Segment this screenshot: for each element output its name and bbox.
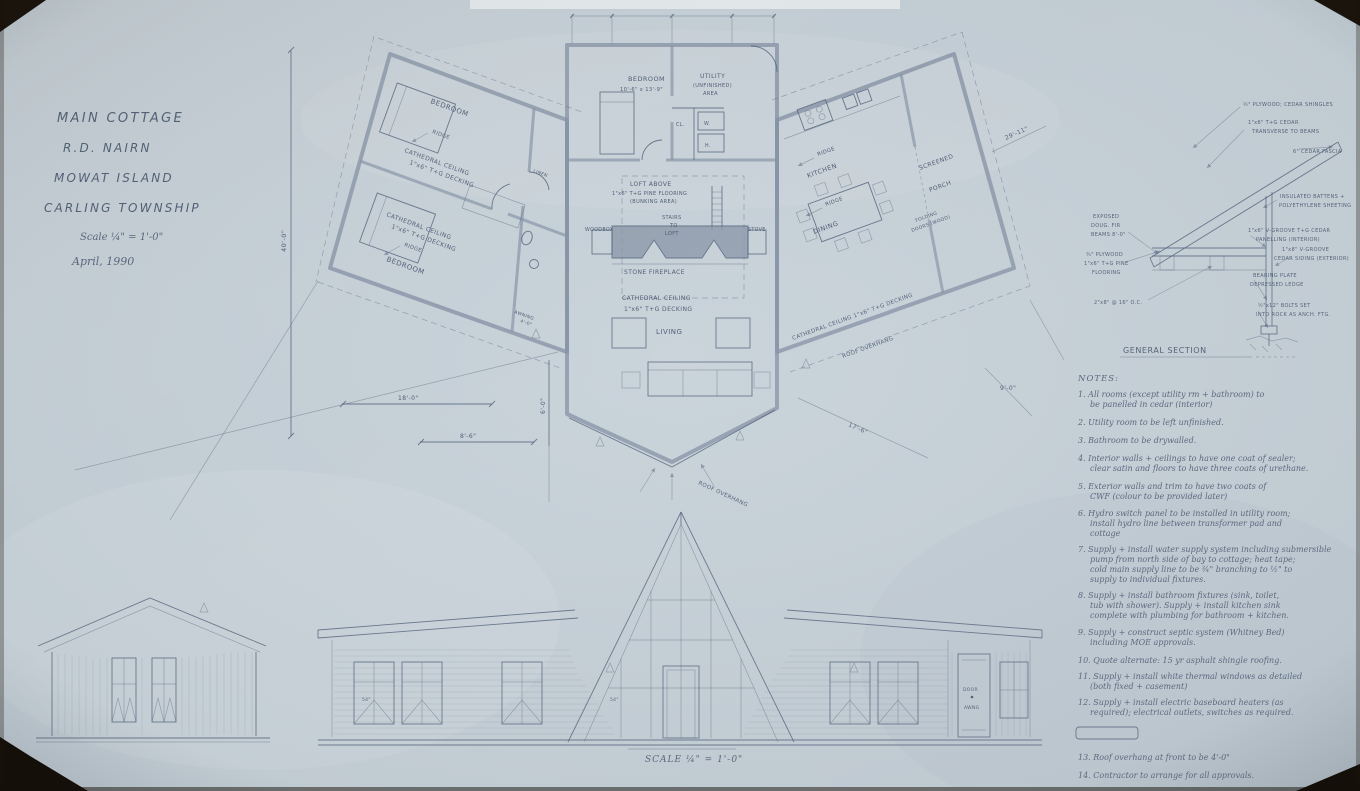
vignette xyxy=(0,0,1360,791)
drawing-canvas: MAIN COTTAGE R.D. NAIRN MOWAT ISLAND CAR… xyxy=(0,0,1360,791)
blueprint-photo: MAIN COTTAGE R.D. NAIRN MOWAT ISLAND CAR… xyxy=(0,0,1360,791)
